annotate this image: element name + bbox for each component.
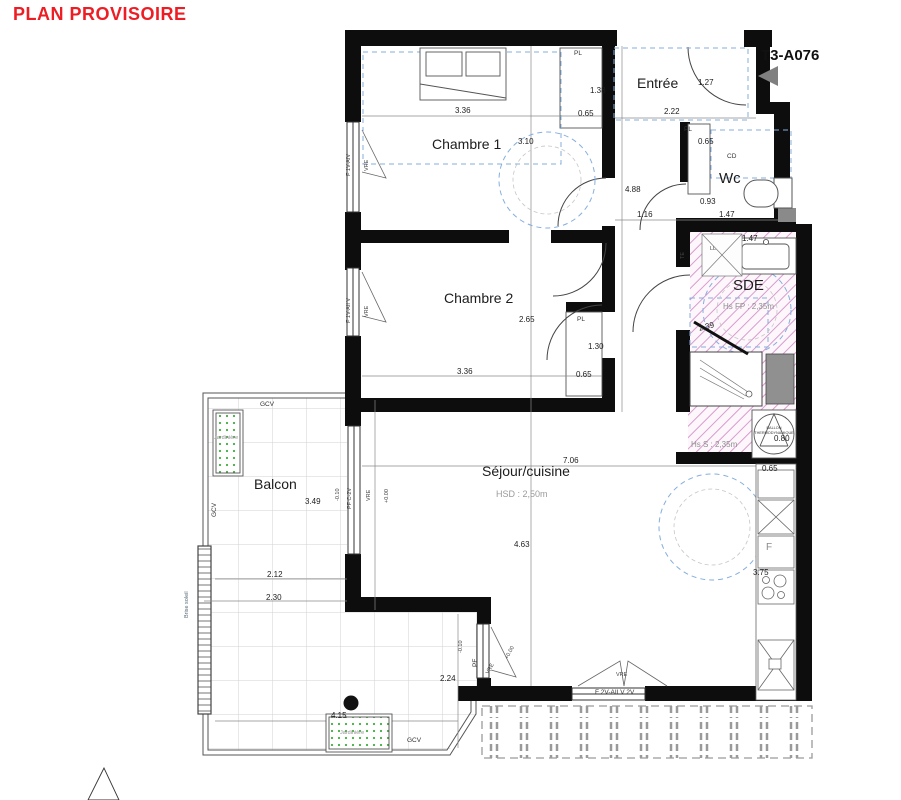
planter-label-top: Jardinière [214,436,238,442]
ceiling-height-sde-fp: Hs FP : 2,35m [723,303,774,311]
level-balcon-west: -0.10 [336,488,342,501]
dim-kitchen-len: 3.75 [753,569,769,577]
dim-wc-pl: 0.65 [698,138,714,146]
washing-machine-label: LL [710,247,716,253]
room-label-chambre1: Chambre 1 [432,137,501,152]
dim-balcon-h: 3.49 [305,498,321,506]
column [344,696,359,711]
kitchen-units [756,464,796,700]
floor-plan-page: PLAN PROVISOIRE T3-A076 Entrée Chambre 1… [0,0,901,800]
fridge-label: F [766,543,772,554]
room-label-balcon: Balcon [254,477,297,492]
water-heater-label-2: THERMODYNAMIQUE [753,431,795,435]
shutter-label-ch2: VRE [365,306,371,317]
shutter-label-sejour-west: VRE [367,490,373,501]
window-code-sejour-west: PF C-2V [348,488,354,509]
level-balcon-south: -0.10 [459,640,465,653]
closet-label-ch1: PL [574,51,582,58]
bed-chambre1 [420,48,506,100]
dim-wc-length: 1.47 [719,211,735,219]
duct [766,354,794,404]
water-heater-label-1: BALLON [753,426,795,430]
room-label-sejour: Séjour/cuisine [482,464,570,479]
room-label-wc: Wc [719,171,741,187]
room-label-sde: SDE [733,278,764,294]
shutter-label-bottom: VRE [616,673,627,679]
dim-ch1-depth: 3.10 [518,138,534,146]
window-code-sejour-south: PF [473,659,480,667]
dim-entree-depth: 1.27 [698,79,714,87]
washing-machine [702,234,742,276]
brise-soleil-strip [198,546,211,714]
room-label-entree: Entrée [637,76,678,91]
window-code-bottom: F 2V-AII V 2V [595,690,634,697]
gcv-label-bottom: GCV [407,738,421,745]
dim-ch1-pl-h: 1.38 [590,87,606,95]
dim-ballon: 0.80 [774,435,790,443]
room-label-chambre2: Chambre 2 [444,291,513,306]
dim-ch2-pl-w: 0.65 [576,371,592,379]
gcv-label-top: GCV [260,402,274,409]
window-code-ch2: F 1V-AII V [347,298,353,323]
dim-hall-width: 1.16 [637,211,653,219]
dim-hall-length: 4.88 [625,186,641,194]
gcv-label-left: GCV [212,503,219,517]
dim-balcon-w2: 2.30 [266,594,282,602]
dim-ch1-pl-w: 0.65 [578,110,594,118]
ceiling-height-sejour: HSD : 2,50m [496,490,548,499]
dim-ch2-width: 3.36 [457,368,473,376]
level-sejour-west: +0.00 [385,489,391,503]
dim-balcon-depth: 2.24 [440,675,456,683]
dim-ch2-pl-h: 1.30 [588,343,604,351]
dim-ch1-width: 3.36 [455,107,471,115]
dim-balcon-w1: 2.12 [267,571,283,579]
dim-sejour-depth: 4.63 [514,541,530,549]
duct-label-cd: CD [727,154,736,161]
balcony-floor [208,398,477,750]
dim-sejour-width: 7.06 [563,457,579,465]
pergola-slats [482,706,812,758]
plan-title: PLAN PROVISOIRE [13,5,187,24]
north-arrow-icon [88,768,119,800]
closet-label-wc: PL [684,127,692,134]
dim-kitchen-top: 0.65 [762,465,778,473]
washbasin [736,238,796,274]
dim-sde-width: 1.47 [742,235,758,243]
dim-balcon-bottom: 4.15 [331,712,347,720]
ceiling-height-sde-s: Hs S : 2,35m [691,441,737,449]
window-code-ch1: F 1V-AIV [347,154,353,176]
brise-soleil-label: Brise soleil [185,591,191,618]
shutter-label-ch1: VRE [365,160,371,171]
planter-label-bottom: Jardinière [340,731,364,737]
dim-entree-width: 2.22 [664,108,680,116]
unit-label: T3-A076 [761,48,819,64]
dim-wc-width: 0.93 [700,198,716,206]
electrical-panel-label: TE [681,252,687,259]
toilet [744,178,792,208]
closet-label-ch2: PL [577,317,585,324]
dim-ch2-depth: 2.65 [519,316,535,324]
